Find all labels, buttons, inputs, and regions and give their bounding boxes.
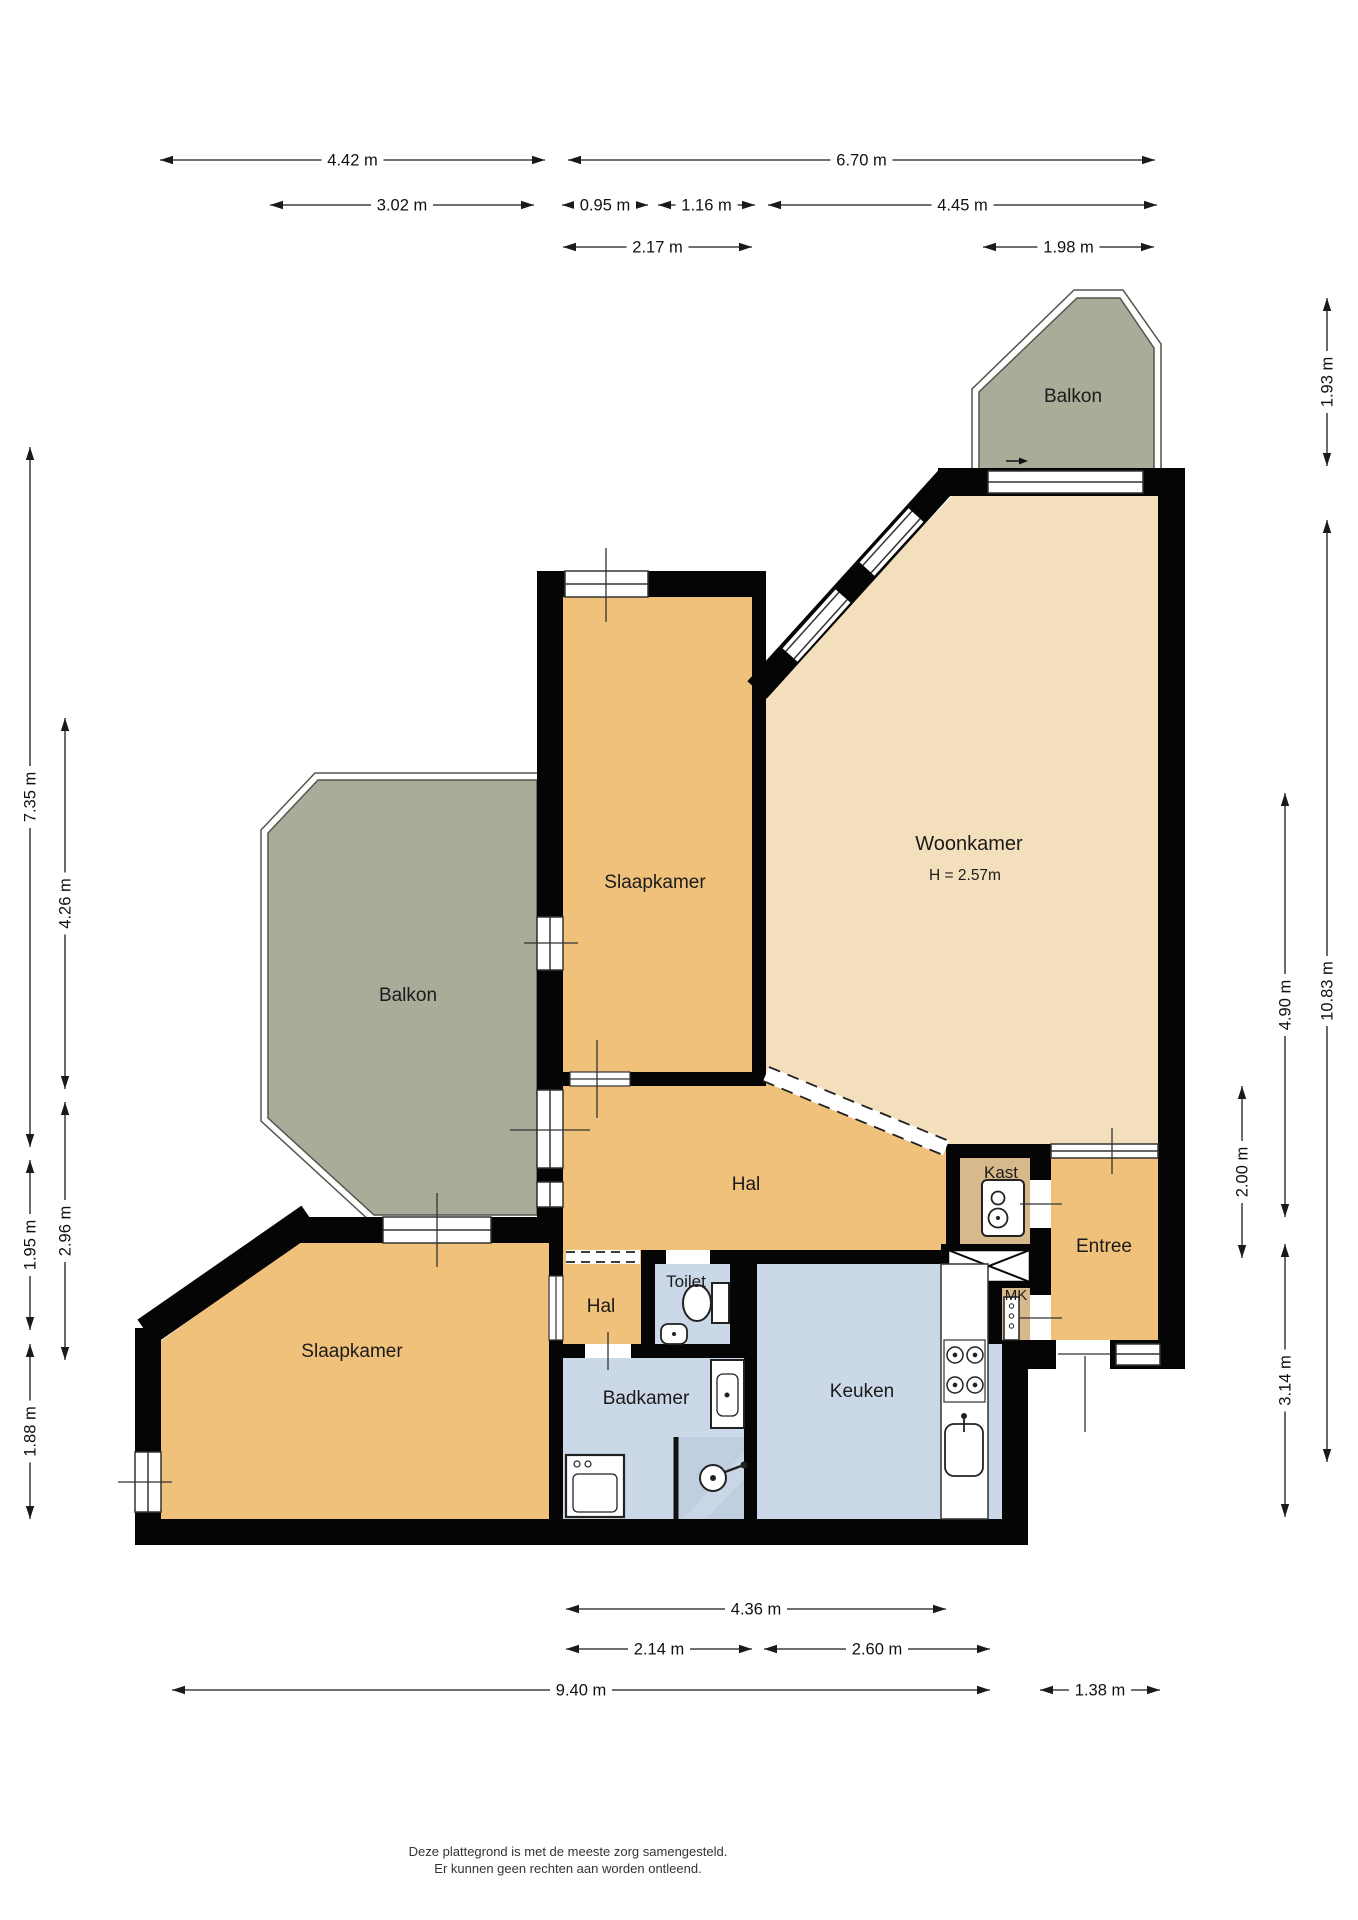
room-label: Slaapkamer: [301, 1341, 403, 1362]
dimension-label: 1.93 m: [1319, 357, 1337, 407]
dimension: 4.45 m: [768, 195, 1157, 215]
window-woonkamer-entree: [1051, 1144, 1158, 1158]
window-hal-small-left: [549, 1276, 563, 1340]
dimension-label: 6.70 m: [836, 152, 886, 170]
dimension-label: 10.83 m: [1319, 961, 1337, 1021]
dimension-label: 1.98 m: [1043, 239, 1093, 257]
floor-plan-page: Woonkamer H = 2.57m Slaapkamer Slaapkame…: [0, 0, 1358, 1920]
dimension-label: 2.96 m: [57, 1206, 75, 1256]
room-label: Toilet: [666, 1272, 706, 1291]
toilet-sink-icon: [661, 1324, 687, 1344]
dimension-label: 2.60 m: [852, 1641, 902, 1659]
washing-machine-icon: [566, 1455, 624, 1517]
dimension-label: 4.90 m: [1277, 980, 1295, 1030]
dimension: 3.02 m: [270, 195, 534, 215]
dimension: 1.38 m: [1040, 1680, 1160, 1700]
dimension: 4.36 m: [566, 1599, 946, 1619]
dimension: 1.88 m: [20, 1344, 40, 1519]
dimension-label: 2.00 m: [1234, 1147, 1252, 1197]
room-woonkamer: [766, 490, 1165, 1150]
window-entree-bottom: [1116, 1344, 1160, 1365]
dimension-label: 3.14 m: [1277, 1355, 1295, 1405]
window-hal-balkon-upper: [537, 1090, 563, 1168]
footer-line-1: Deze plattegrond is met de meeste zorg s…: [409, 1844, 728, 1859]
dimension-label: 9.40 m: [556, 1682, 606, 1700]
footer-disclaimer: Deze plattegrond is met de meeste zorg s…: [409, 1844, 728, 1876]
dimension: 1.16 m: [658, 195, 755, 215]
dimension: 2.00 m: [1232, 1086, 1252, 1258]
dimension: 9.40 m: [172, 1680, 990, 1700]
room-label: Badkamer: [603, 1388, 690, 1409]
room-label: Keuken: [830, 1381, 894, 1402]
room-label: Slaapkamer: [604, 872, 706, 893]
dimension: 0.95 m: [562, 195, 648, 215]
dimension-label: 2.17 m: [632, 239, 682, 257]
dimension-label: 7.35 m: [22, 772, 40, 822]
room-label: Entree: [1076, 1236, 1132, 1257]
ceiling-height-label: H = 2.57m: [929, 867, 1001, 884]
floor-plan: Woonkamer H = 2.57m Slaapkamer Slaapkame…: [0, 0, 1358, 1920]
dimension-label: 1.88 m: [22, 1406, 40, 1456]
bathroom-sink-icon: [711, 1360, 744, 1428]
room-label: Hal: [587, 1296, 616, 1317]
door-slaapkamer-top: [570, 1072, 630, 1086]
room-slaapkamer-top: [563, 597, 752, 1086]
boiler-icon: [982, 1180, 1024, 1236]
dimension: 2.17 m: [563, 237, 752, 257]
dimension: 4.42 m: [160, 150, 545, 170]
door-toilet: [666, 1250, 710, 1264]
window-hal-balkon-lower: [537, 1182, 563, 1207]
dimension: 1.93 m: [1317, 298, 1337, 466]
dimension: 1.95 m: [20, 1160, 40, 1330]
room-label: Woonkamer: [915, 833, 1023, 855]
footer-line-2: Er kunnen geen rechten aan worden ontlee…: [434, 1861, 701, 1876]
dimension: 2.14 m: [566, 1639, 752, 1659]
dimension-label: 0.95 m: [580, 197, 630, 215]
dimension-label: 1.38 m: [1075, 1682, 1125, 1700]
room-label: Balkon: [1044, 386, 1102, 407]
dimension-label: 4.45 m: [937, 197, 987, 215]
front-door: [1056, 1340, 1110, 1369]
dimension: 4.90 m: [1275, 793, 1295, 1217]
dimension: 2.60 m: [764, 1639, 990, 1659]
dimension: 6.70 m: [568, 150, 1155, 170]
room-label: Hal: [732, 1174, 761, 1195]
dimension: 7.35 m: [20, 447, 40, 1147]
opening-hal-halsmall: [566, 1250, 640, 1264]
room-label: Balkon: [379, 985, 437, 1006]
dimension-label: 4.26 m: [57, 878, 75, 928]
dimension: 4.26 m: [55, 718, 75, 1089]
kitchen-counter: [941, 1264, 988, 1519]
room-label: Kast: [984, 1163, 1018, 1182]
window-woonkamer-balkon: [988, 471, 1143, 493]
dimension-label: 4.42 m: [327, 152, 377, 170]
room-label: MK: [1005, 1287, 1028, 1304]
dimension: 1.98 m: [983, 237, 1154, 257]
dimension-label: 4.36 m: [731, 1601, 781, 1619]
dimension-label: 1.16 m: [681, 197, 731, 215]
dimension-label: 3.02 m: [377, 197, 427, 215]
dimension-label: 1.95 m: [22, 1220, 40, 1270]
dimension-label: 2.14 m: [634, 1641, 684, 1659]
dimension: 3.14 m: [1275, 1244, 1295, 1517]
dimension: 10.83 m: [1317, 520, 1337, 1462]
dimension: 2.96 m: [55, 1102, 75, 1360]
